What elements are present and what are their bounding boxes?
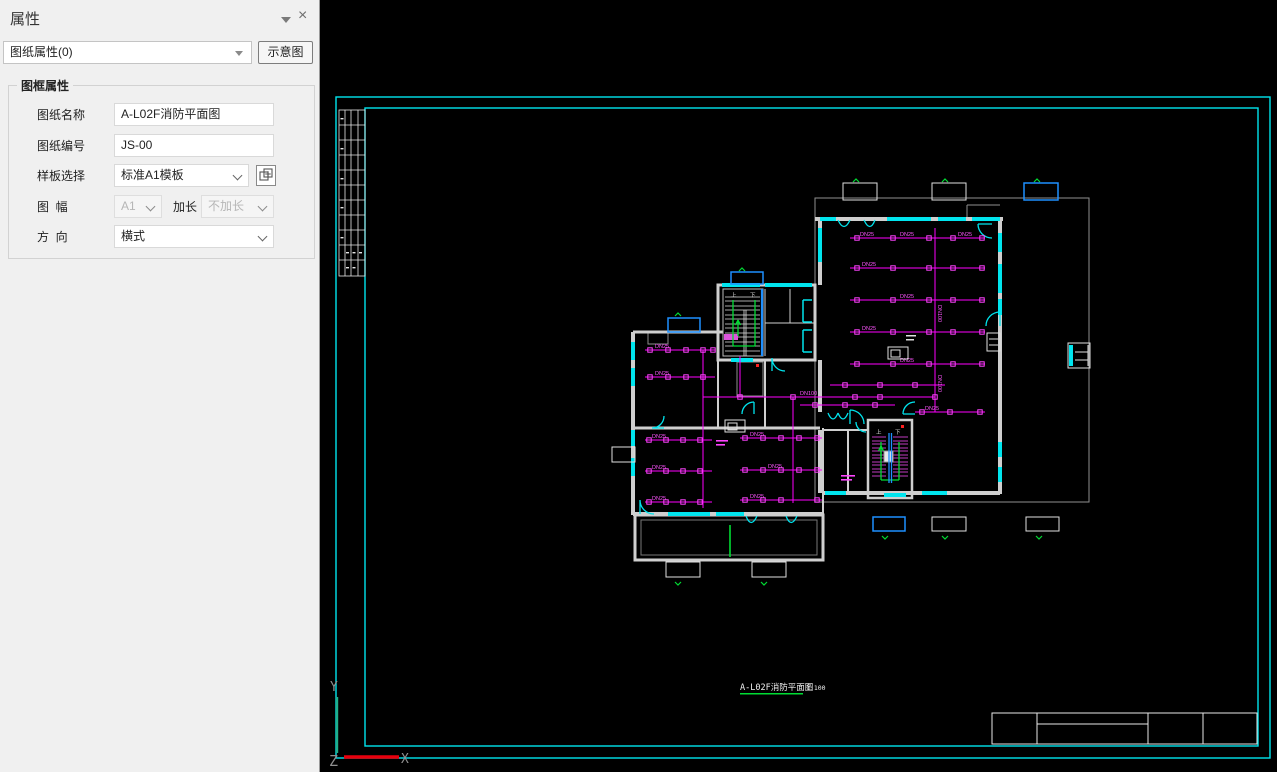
title-underline (740, 693, 803, 695)
svg-text:DN25: DN25 (862, 262, 876, 268)
sheet-name-value: A-L02F消防平面图 (121, 107, 220, 121)
svg-text:DN25: DN25 (958, 232, 972, 238)
revision-strip-table (339, 110, 365, 276)
svg-text:下: 下 (750, 292, 756, 299)
property-category-value: 图纸属性(0) (10, 45, 73, 59)
chevron-down-icon (258, 232, 268, 242)
sheet-number-label: 图纸编号 (37, 137, 85, 154)
svg-text:DN100: DN100 (936, 375, 942, 392)
svg-text:DN25: DN25 (925, 406, 939, 412)
chevron-down-icon (258, 202, 268, 212)
sheet-scale-text: 1:100 (806, 684, 826, 692)
sheet-size-select: A1 (114, 195, 162, 218)
svg-text:DN25: DN25 (750, 494, 764, 500)
template-select[interactable]: 标准A1模板 (114, 164, 249, 187)
chevron-down-icon (235, 51, 243, 56)
orientation-value: 横式 (121, 229, 145, 243)
pipe-labels: DN25 DN25 DN25 DN25 DN25 DN25 DN25 DN25 … (652, 232, 972, 502)
sheet-name-label: 图纸名称 (37, 106, 85, 123)
svg-text:DN25: DN25 (862, 326, 876, 332)
sheet-name-input[interactable]: A-L02F消防平面图 (114, 103, 274, 126)
perimeter-fixtures (612, 183, 1090, 577)
title-block (992, 713, 1257, 744)
sheet-title-text: A-L02F消防平面图 (740, 682, 813, 693)
svg-text:DN25: DN25 (652, 496, 666, 502)
template-value: 标准A1模板 (121, 168, 184, 182)
extend-value: 不加长 (208, 199, 244, 213)
sheet-title-label: A-L02F消防平面图 1:100 (740, 682, 826, 693)
green-marks (675, 179, 1042, 695)
schematic-button[interactable]: 示意图 (258, 41, 313, 64)
cad-drawing[interactable]: Y Z X (321, 0, 1277, 772)
template-select-label: 样板选择 (37, 167, 85, 184)
ucs-x-label: X (401, 752, 409, 767)
sheet-number-value: JS-00 (121, 138, 152, 152)
extend-label: 加长 (173, 198, 197, 215)
frame-properties-group: 图框属性 图纸名称 A-L02F消防平面图 图纸编号 JS-00 样板选择 标准… (8, 85, 315, 259)
sheet-size-value: A1 (121, 199, 136, 213)
orientation-select[interactable]: 横式 (114, 225, 274, 248)
template-browse-button[interactable] (256, 165, 276, 186)
close-icon[interactable]: × (298, 7, 307, 25)
svg-text:DN25: DN25 (860, 232, 874, 238)
svg-text:DN100: DN100 (800, 391, 817, 397)
svg-text:DN25: DN25 (655, 371, 669, 377)
extend-select: 不加长 (201, 195, 274, 218)
collapse-caret-icon[interactable] (281, 17, 291, 23)
svg-text:DN25: DN25 (900, 232, 914, 238)
property-category-select[interactable]: 图纸属性(0) (3, 41, 252, 64)
windows-doors (633, 219, 1073, 523)
svg-text:DN25: DN25 (652, 465, 666, 471)
group-title: 图框属性 (17, 77, 73, 94)
floor-plan: DN25 DN25 DN25 DN25 DN25 DN25 DN25 DN25 … (612, 179, 1090, 695)
app-window: { "panel": { "title": "属性", "selector_va… (0, 0, 1277, 772)
ucs-icon: Y Z X (329, 680, 409, 770)
copy-plus-icon (257, 166, 275, 185)
svg-text:DN25: DN25 (768, 464, 782, 470)
svg-text:下: 下 (895, 429, 901, 436)
svg-text:上: 上 (731, 291, 737, 299)
svg-text:上: 上 (876, 428, 882, 436)
svg-text:DN25: DN25 (655, 344, 669, 350)
properties-panel: 属性 × 图纸属性(0) 示意图 图框属性 图纸名称 A-L02F消防平面图 图… (0, 0, 320, 772)
sheet-size-label: 图 幅 (37, 198, 68, 215)
walls (633, 219, 1003, 560)
sheet-number-input[interactable]: JS-00 (114, 134, 274, 157)
panel-title: 属性 (10, 8, 40, 29)
ucs-y-label: Y (330, 680, 338, 695)
chevron-down-icon (146, 202, 156, 212)
ucs-z-label: Z (329, 752, 338, 770)
svg-text:DN25: DN25 (750, 432, 764, 438)
svg-text:DN25: DN25 (652, 434, 666, 440)
chevron-down-icon (233, 171, 243, 181)
svg-text:DN25: DN25 (900, 294, 914, 300)
cad-drawing-canvas[interactable]: Y Z X (321, 0, 1277, 772)
svg-text:DN100: DN100 (936, 305, 942, 322)
orientation-label: 方 向 (37, 228, 68, 245)
